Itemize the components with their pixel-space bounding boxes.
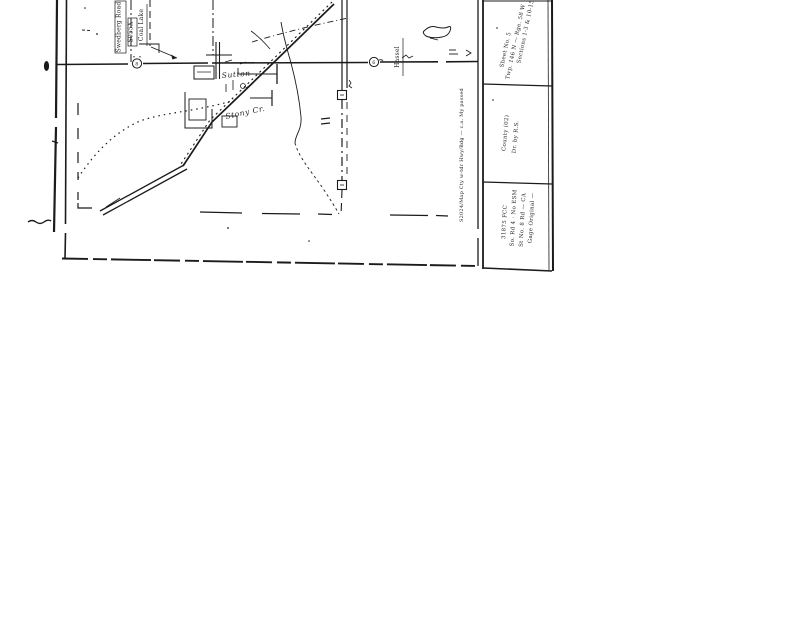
route-marker-east-number: 6 (372, 60, 375, 66)
route-marker-west-number: 8 (135, 62, 138, 68)
hassel-label: Hassel (394, 46, 401, 68)
creek-name-label: Stony Cr. (225, 104, 266, 121)
swedberg-road-label: Swedberg Road (116, 2, 123, 53)
edge-note: S2024/Map Cty w-tdr Hwy/Bdg — c.a. My pa… (459, 87, 465, 221)
title-bottom-line-2: St No. 8 Rd — CA (519, 192, 528, 247)
title-middle-line-2: County (02) (500, 115, 510, 152)
title-bottom-line-1: Gage Original — (528, 192, 537, 243)
township-boundary (78, 103, 448, 216)
title-block-text: Sections 1-3 & 10-15 Twp. 146 N — Rge. 5… (499, 0, 536, 247)
title-bottom-line-4: 31875 FCC (501, 205, 509, 239)
railroad (100, 2, 334, 215)
map-border (28, 0, 478, 266)
s055x-label: S055X (128, 21, 135, 42)
title-middle-line-1: Dr. by R.S. (512, 120, 521, 153)
coal-lake-label: Coal Lake (138, 9, 145, 41)
plat-map-scan: Swedberg Road S055X Coal Lake Sutton Sto… (0, 0, 800, 618)
map-labels: Swedberg Road S055X Coal Lake Sutton Sto… (116, 2, 466, 222)
town-name-label: Sutton (221, 69, 251, 80)
scanned-document-page: Swedberg Road S055X Coal Lake Sutton Sto… (0, 0, 800, 618)
section-lines (82, 0, 213, 62)
pond (402, 27, 471, 59)
label-pointer (139, 44, 177, 60)
north-south-road (321, 0, 352, 216)
label-boxes (115, 1, 403, 76)
title-bottom-line-3: So. Rd 4 · No ESM (510, 189, 519, 246)
scan-noise (84, 7, 498, 242)
